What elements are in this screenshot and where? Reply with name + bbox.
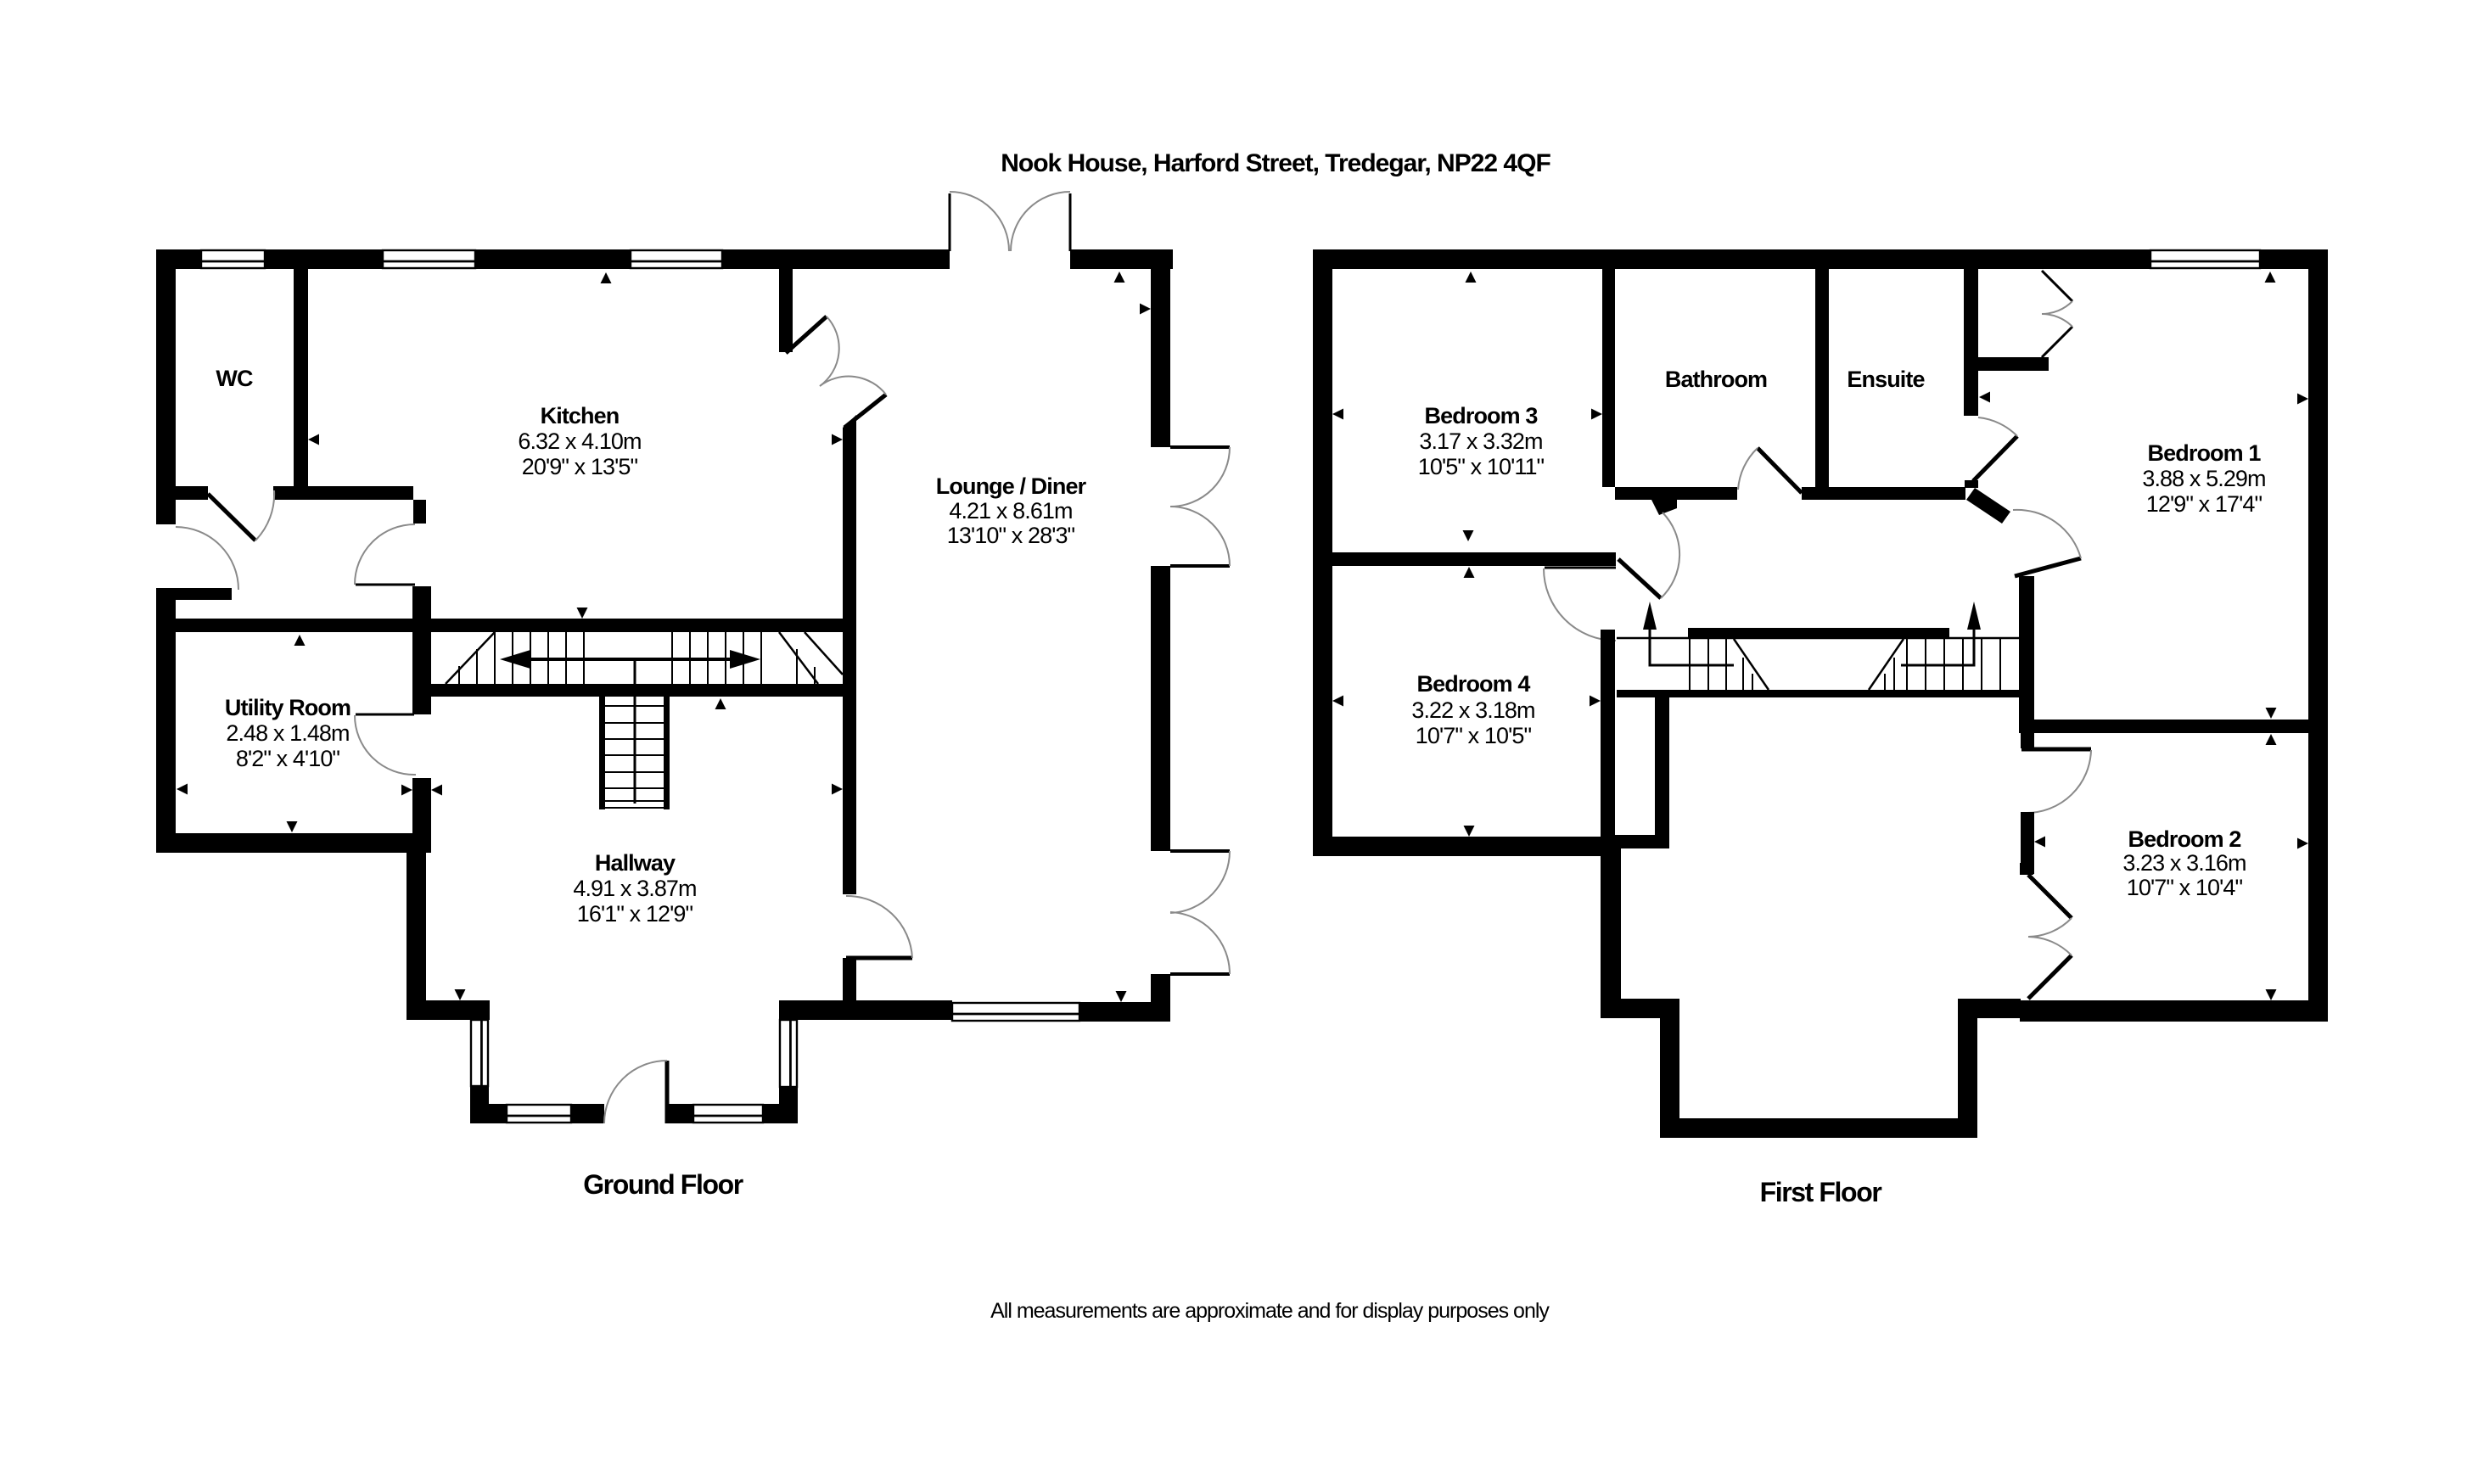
svg-text:First Floor: First Floor bbox=[1760, 1177, 1882, 1207]
svg-text:Utility Room: Utility Room bbox=[225, 695, 350, 720]
svg-text:Lounge / Diner: Lounge / Diner bbox=[936, 473, 1087, 499]
svg-text:4.91 x 3.87m: 4.91 x 3.87m bbox=[573, 876, 696, 901]
svg-text:Kitchen: Kitchen bbox=[541, 403, 620, 428]
svg-text:2.48 x 1.48m: 2.48 x 1.48m bbox=[226, 720, 349, 746]
svg-text:Bedroom 2: Bedroom 2 bbox=[2128, 826, 2241, 852]
svg-text:3.17 x 3.32m: 3.17 x 3.32m bbox=[1419, 428, 1542, 454]
svg-text:Ensuite: Ensuite bbox=[1847, 367, 1925, 392]
svg-text:4.21 x 8.61m: 4.21 x 8.61m bbox=[949, 498, 1072, 524]
svg-text:16'1" x 12'9": 16'1" x 12'9" bbox=[577, 901, 693, 927]
svg-text:3.23 x 3.16m: 3.23 x 3.16m bbox=[2122, 850, 2246, 876]
svg-text:3.22 x 3.18m: 3.22 x 3.18m bbox=[1411, 697, 1534, 723]
svg-text:3.88 x 5.29m: 3.88 x 5.29m bbox=[2142, 466, 2265, 491]
svg-text:8'2" x 4'10": 8'2" x 4'10" bbox=[236, 746, 340, 771]
svg-text:Bedroom 4: Bedroom 4 bbox=[1417, 671, 1531, 697]
svg-text:10'7" x 10'5": 10'7" x 10'5" bbox=[1416, 723, 1532, 748]
svg-text:Bedroom 3: Bedroom 3 bbox=[1425, 403, 1539, 428]
svg-text:6.32 x 4.10m: 6.32 x 4.10m bbox=[518, 428, 641, 454]
svg-text:10'7" x 10'4": 10'7" x 10'4" bbox=[2127, 875, 2243, 900]
svg-text:Hallway: Hallway bbox=[595, 850, 676, 876]
svg-text:10'5" x 10'11": 10'5" x 10'11" bbox=[1418, 454, 1545, 479]
svg-text:Bathroom: Bathroom bbox=[1665, 367, 1767, 392]
svg-text:Nook House, Harford Street, Tr: Nook House, Harford Street, Tredegar, NP… bbox=[1001, 149, 1550, 177]
svg-text:All measurements are approxima: All measurements are approximate and for… bbox=[990, 1299, 1550, 1323]
svg-text:20'9" x 13'5": 20'9" x 13'5" bbox=[522, 454, 638, 479]
svg-text:Ground Floor: Ground Floor bbox=[583, 1169, 743, 1200]
svg-text:Bedroom 1: Bedroom 1 bbox=[2148, 440, 2262, 466]
svg-text:12'9" x 17'4": 12'9" x 17'4" bbox=[2146, 491, 2263, 517]
svg-text:13'10" x 28'3": 13'10" x 28'3" bbox=[947, 523, 1075, 548]
svg-text:WC: WC bbox=[216, 366, 253, 391]
